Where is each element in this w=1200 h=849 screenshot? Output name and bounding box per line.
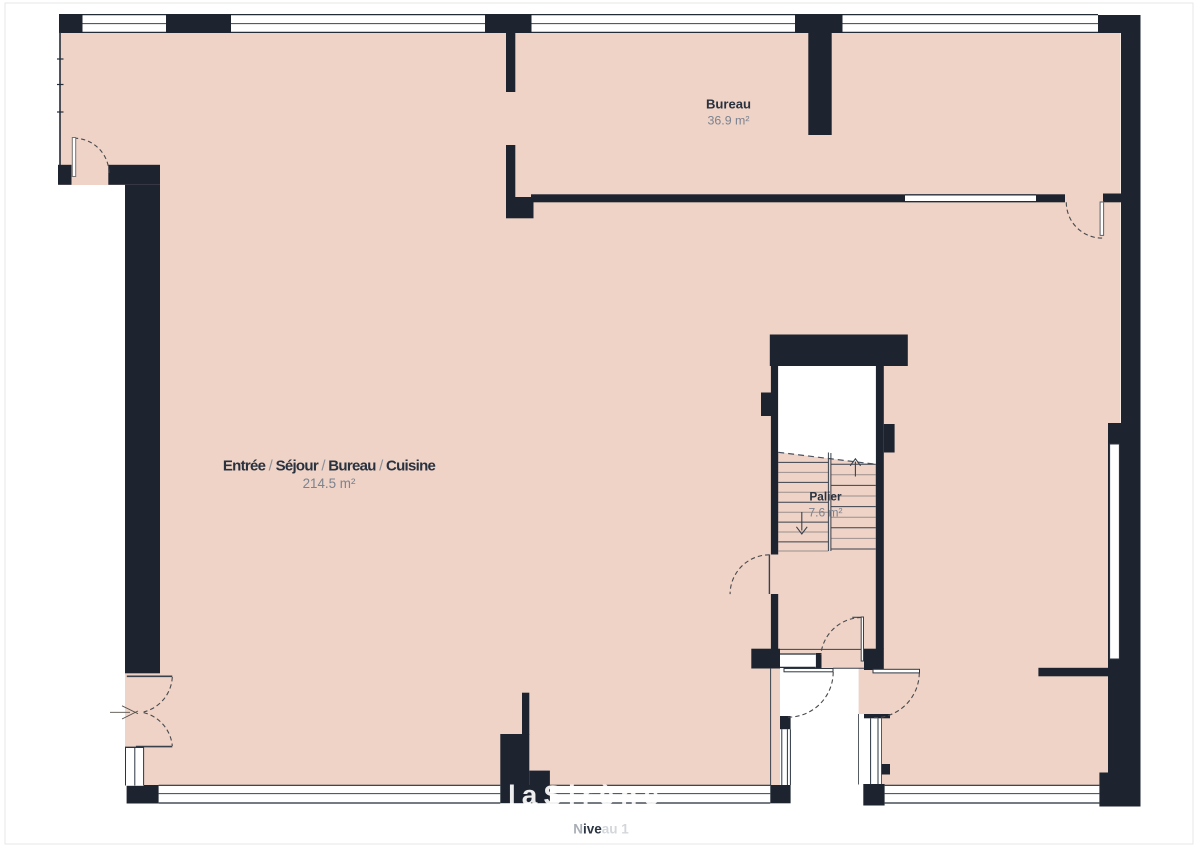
svg-text:Palier: Palier bbox=[809, 490, 842, 504]
svg-text:Entrée / Séjour / Bureau / Cui: Entrée / Séjour / Bureau / Cuisine bbox=[223, 458, 436, 475]
svg-text:Niveau 1: Niveau 1 bbox=[573, 822, 629, 837]
svg-text:7.6 m²: 7.6 m² bbox=[808, 506, 842, 520]
svg-text:laSirène: laSirène bbox=[508, 780, 665, 811]
svg-text:214.5 m²: 214.5 m² bbox=[303, 476, 356, 491]
svg-text:36.9 m²: 36.9 m² bbox=[707, 114, 749, 128]
svg-text:Bureau: Bureau bbox=[706, 97, 751, 112]
